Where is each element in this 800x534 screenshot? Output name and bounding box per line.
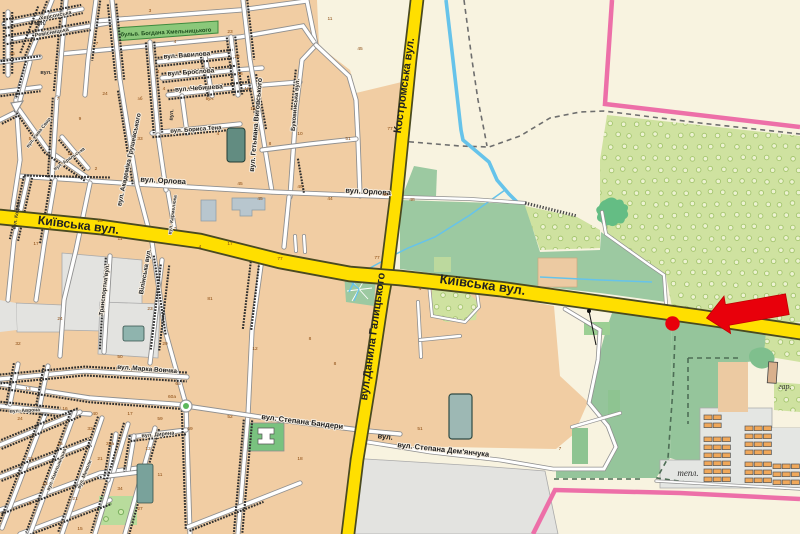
svg-text:11: 11 [158,472,163,478]
svg-text:вул.: вул. [169,109,176,121]
svg-text:33: 33 [137,136,143,142]
svg-text:21: 21 [97,456,103,462]
svg-text:7: 7 [96,41,99,47]
svg-text:16: 16 [237,71,243,77]
svg-text:40: 40 [92,411,98,417]
svg-text:24: 24 [102,91,108,97]
svg-text:81: 81 [207,296,213,302]
svg-text:вул.: вул. [40,70,52,76]
svg-text:33: 33 [87,426,93,432]
svg-text:16: 16 [62,406,68,412]
svg-text:34: 34 [117,486,123,492]
svg-text:12: 12 [252,346,258,352]
svg-text:29: 29 [162,341,168,347]
svg-text:15: 15 [77,526,83,532]
svg-text:45: 45 [357,46,363,52]
svg-text:вул.: вул. [377,431,393,442]
svg-text:24: 24 [17,416,23,422]
svg-text:10: 10 [297,131,303,137]
svg-text:28: 28 [234,54,240,60]
svg-text:7: 7 [174,226,177,232]
svg-text:17: 17 [33,241,39,247]
svg-text:40: 40 [297,184,303,190]
svg-text:7: 7 [57,96,60,102]
svg-text:13: 13 [25,386,31,392]
svg-text:52: 52 [227,414,233,420]
svg-text:4: 4 [217,131,220,137]
svg-text:11: 11 [118,236,123,242]
svg-text:4: 4 [419,286,422,292]
svg-text:3: 3 [149,8,152,14]
svg-text:16: 16 [57,441,63,447]
svg-text:2: 2 [49,226,52,232]
svg-text:65: 65 [175,381,181,387]
svg-text:вул.: вул. [206,97,215,102]
svg-text:77: 77 [374,255,380,261]
svg-text:4: 4 [157,69,160,75]
svg-text:36: 36 [9,51,15,57]
svg-text:11: 11 [68,151,73,157]
svg-text:8: 8 [309,336,312,342]
svg-text:11: 11 [328,16,333,22]
svg-text:4: 4 [174,39,177,45]
svg-text:8: 8 [334,361,337,367]
svg-text:5: 5 [29,136,32,142]
svg-text:32: 32 [15,341,21,347]
svg-text:45: 45 [237,181,243,187]
svg-text:13: 13 [145,446,151,452]
svg-text:гар.: гар. [778,382,791,391]
svg-text:48: 48 [409,197,415,203]
svg-text:16: 16 [250,106,256,112]
svg-text:21: 21 [72,496,78,502]
svg-text:24: 24 [57,316,63,322]
svg-text:60а: 60а [168,394,176,400]
svg-text:33: 33 [27,456,33,462]
svg-text:вул.: вул. [34,21,46,27]
svg-text:27: 27 [137,506,143,512]
svg-text:45: 45 [257,196,263,202]
svg-text:4: 4 [199,244,202,250]
svg-text:44: 44 [327,196,333,202]
svg-text:9: 9 [29,501,32,507]
svg-text:зб: зб [138,96,143,102]
svg-text:9: 9 [79,116,82,122]
svg-text:77: 77 [387,126,393,132]
svg-text:23: 23 [147,306,153,312]
svg-text:18: 18 [297,456,303,462]
svg-text:50: 50 [117,354,123,360]
svg-text:тепл.: тепл. [677,468,698,478]
svg-text:59: 59 [187,426,193,432]
svg-text:13: 13 [97,218,103,224]
svg-text:7: 7 [559,446,562,452]
svg-text:17: 17 [127,411,133,417]
svg-text:23: 23 [227,29,233,35]
svg-text:8: 8 [269,141,272,147]
svg-text:17: 17 [227,241,233,247]
svg-text:18: 18 [244,86,250,92]
svg-text:4: 4 [163,86,166,92]
svg-text:59: 59 [157,416,163,422]
svg-text:48: 48 [382,192,388,198]
svg-text:51: 51 [417,426,423,432]
svg-text:51: 51 [345,136,351,142]
svg-text:2: 2 [95,166,98,172]
svg-text:77: 77 [277,256,283,262]
svg-text:33а: 33а [106,441,114,447]
svg-text:13: 13 [42,481,48,487]
